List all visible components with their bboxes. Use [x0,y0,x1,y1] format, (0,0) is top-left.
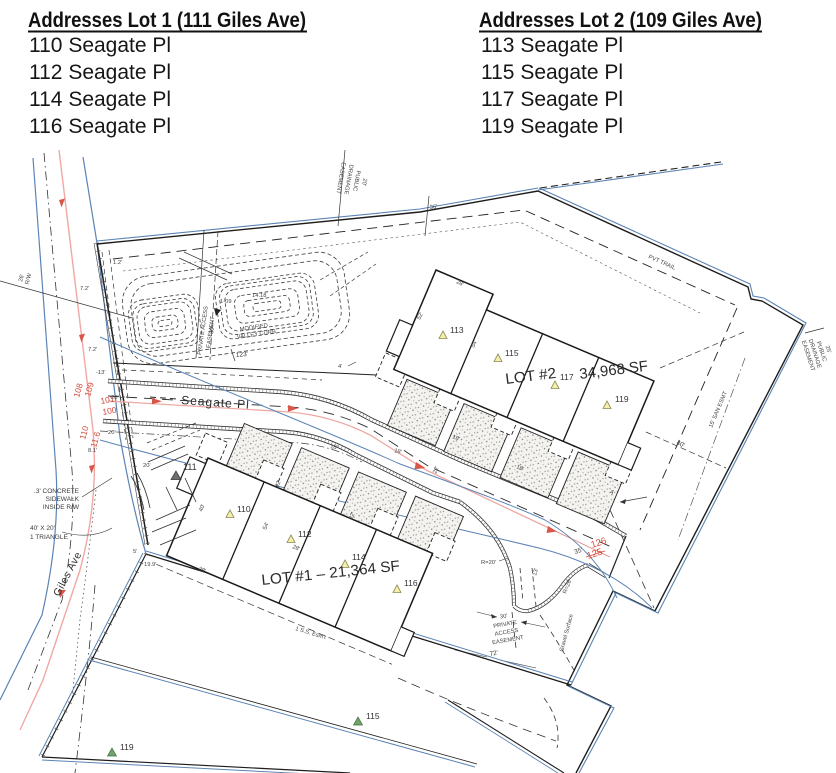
svg-text:115 Seagate Pl: 115 Seagate Pl [481,61,623,84]
svg-text:119: 119 [120,742,134,752]
svg-text:-13': -13' [96,370,106,376]
svg-text:116: 116 [404,578,418,588]
svg-text:1-09: 1-09 [220,299,232,305]
svg-text:112 Seagate Pl: 112 Seagate Pl [29,61,171,84]
svg-text:20': 20' [143,463,151,469]
svg-text:110 Seagate Pl: 110 Seagate Pl [29,34,171,57]
svg-text:30': 30' [500,613,508,620]
svg-text:110: 110 [237,504,251,514]
svg-text:20': 20' [360,178,367,186]
svg-text:Addresses Lot 2 (109 Giles Ave: Addresses Lot 2 (109 Giles Ave) [479,9,762,32]
svg-text:11.6: 11.6 [88,430,102,448]
svg-text:Gravel Surface: Gravel Surface [559,614,575,653]
svg-text:20': 20' [108,430,116,436]
svg-text:7.2': 7.2' [80,286,89,292]
svg-text:110: 110 [77,425,90,441]
svg-text:40' X 20': 40' X 20' [30,525,55,532]
svg-text:115: 115 [366,711,380,721]
svg-text:18': 18' [394,448,403,456]
svg-text:SIDEWALK: SIDEWALK [46,496,80,503]
svg-text:1 S.S. Esm't: 1 S.S. Esm't [294,626,326,641]
svg-text:14.18: 14.18 [252,293,267,299]
svg-text:119: 119 [615,394,629,404]
svg-text:113: 113 [450,325,464,335]
svg-text:4': 4' [610,490,614,496]
svg-text:Seagate Pl: Seagate Pl [181,393,251,412]
svg-text:109: 109 [82,381,96,398]
svg-text:20': 20' [111,395,119,401]
svg-text:R/W: R/W [25,272,34,285]
svg-text:13': 13' [532,568,540,577]
svg-text:INSIDE R/W: INSIDE R/W [43,504,80,511]
svg-text:8.1': 8.1' [88,448,97,454]
svg-text:116 Seagate Pl: 116 Seagate Pl [29,115,171,138]
svg-text:40': 40' [675,439,686,449]
svg-text:22': 22' [432,465,440,474]
svg-text:5': 5' [133,549,137,555]
svg-text:113 Seagate Pl: 113 Seagate Pl [481,34,623,57]
svg-text:117 Seagate Pl: 117 Seagate Pl [481,88,623,111]
svg-text:4': 4' [338,364,342,370]
svg-text:R=20': R=20' [481,560,496,566]
svg-text:Addresses Lot 1 (111 Giles Ave: Addresses Lot 1 (111 Giles Ave) [28,9,306,32]
svg-text:19.9': 19.9' [144,562,156,568]
svg-text:123': 123' [236,351,249,359]
svg-text:7.2': 7.2' [88,347,97,353]
svg-text:115: 115 [505,348,519,358]
svg-text:114 Seagate Pl: 114 Seagate Pl [29,88,171,111]
svg-text:Giles Ave: Giles Ave [51,550,84,599]
svg-text:112: 112 [298,529,312,539]
svg-text:1.2': 1.2' [113,260,122,266]
svg-text:1 TRIANGLE: 1 TRIANGLE [30,534,68,541]
svg-text:119 Seagate Pl: 119 Seagate Pl [481,115,623,138]
svg-text:PVT TRAIL: PVT TRAIL [647,254,677,272]
svg-text:117: 117 [560,372,574,382]
svg-text:.3' CONCRETE: .3' CONCRETE [34,488,80,495]
svg-text:100: 100 [102,405,118,417]
svg-text:111: 111 [183,462,197,472]
svg-text:18': 18' [330,444,338,451]
svg-text:36': 36' [430,204,438,211]
